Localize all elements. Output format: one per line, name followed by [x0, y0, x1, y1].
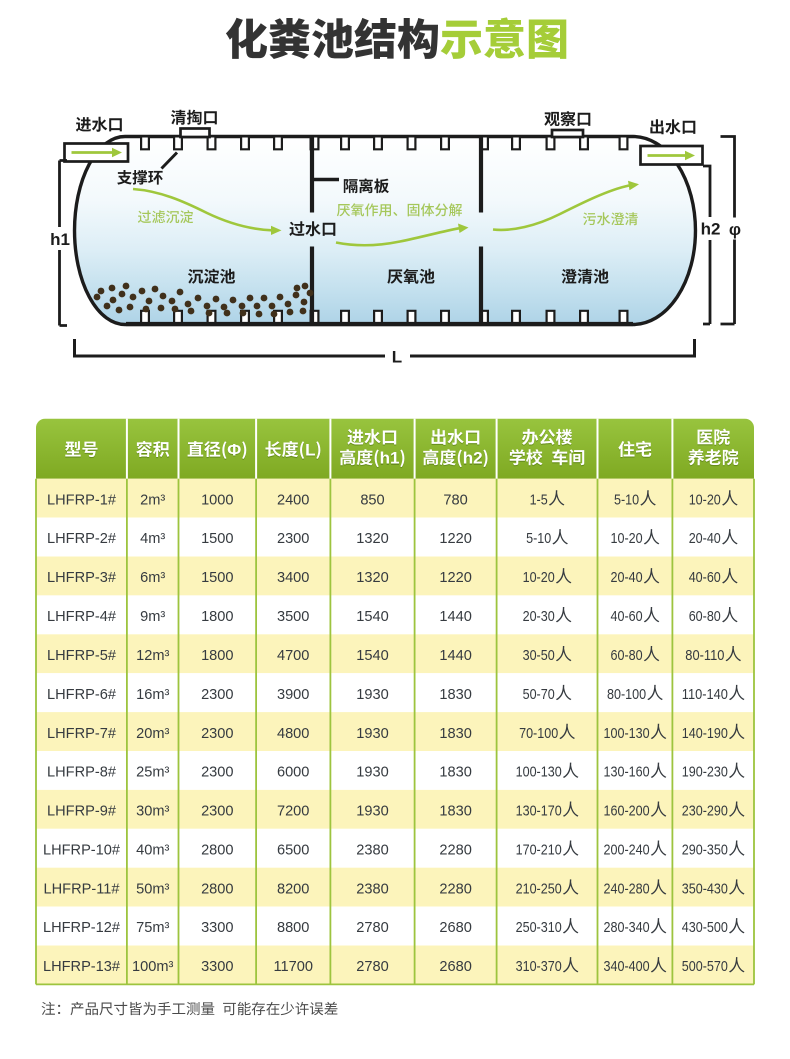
svg-text:2380: 2380 — [356, 881, 388, 897]
svg-text:40m³: 40m³ — [136, 843, 169, 859]
svg-text:240-280: 240-280 — [604, 881, 650, 897]
svg-text:LHFRP-7#: LHFRP-7# — [47, 726, 117, 742]
svg-text:2800: 2800 — [201, 843, 233, 859]
svg-text:8800: 8800 — [277, 920, 309, 936]
svg-text:50m³: 50m³ — [136, 881, 169, 897]
svg-text:30m³: 30m³ — [136, 804, 169, 820]
svg-text:4700: 4700 — [277, 648, 309, 664]
svg-text:340-400: 340-400 — [604, 959, 650, 975]
svg-text:4800: 4800 — [277, 726, 309, 742]
svg-text:1500: 1500 — [201, 531, 233, 547]
svg-text:10-20: 10-20 — [523, 570, 555, 586]
svg-text:200-240: 200-240 — [604, 843, 650, 859]
svg-text:11700: 11700 — [273, 959, 313, 975]
svg-text:10-20: 10-20 — [611, 531, 643, 547]
svg-text:40-60: 40-60 — [611, 609, 643, 625]
svg-text:L: L — [305, 441, 315, 460]
svg-text:50-70: 50-70 — [523, 687, 555, 703]
svg-text:LHFRP-6#: LHFRP-6# — [47, 687, 117, 703]
svg-text:2m³: 2m³ — [140, 492, 165, 508]
svg-text:75m³: 75m³ — [136, 920, 169, 936]
svg-text:1800: 1800 — [201, 648, 233, 664]
svg-text:290-350: 290-350 — [682, 843, 728, 859]
svg-text:30-50: 30-50 — [523, 648, 555, 664]
svg-text:6m³: 6m³ — [140, 570, 165, 586]
svg-text:1000: 1000 — [201, 492, 233, 508]
svg-text:80-100: 80-100 — [607, 687, 646, 703]
svg-text:1930: 1930 — [356, 765, 388, 781]
svg-text:6500: 6500 — [277, 843, 309, 859]
svg-text:1800: 1800 — [201, 609, 233, 625]
svg-text:160-200: 160-200 — [604, 804, 650, 820]
svg-text:2680: 2680 — [439, 959, 471, 975]
svg-text:LHFRP-9#: LHFRP-9# — [47, 804, 117, 820]
svg-text:LHFRP-1#: LHFRP-1# — [47, 492, 117, 508]
svg-text:850: 850 — [360, 492, 384, 508]
svg-text:9m³: 9m³ — [140, 609, 165, 625]
svg-text:70-100: 70-100 — [519, 726, 558, 742]
svg-text:60-80: 60-80 — [689, 609, 721, 625]
svg-text:LHFRP-12#: LHFRP-12# — [43, 920, 121, 936]
svg-text:1-5: 1-5 — [530, 492, 548, 508]
svg-text:h1: h1 — [50, 230, 70, 249]
svg-text:12m³: 12m³ — [136, 648, 169, 664]
svg-text:100m³: 100m³ — [132, 959, 174, 975]
svg-text:1830: 1830 — [439, 804, 471, 820]
svg-text:110-140: 110-140 — [682, 687, 728, 703]
svg-text:3400: 3400 — [277, 570, 309, 586]
svg-text:140-190: 140-190 — [682, 726, 728, 742]
svg-text:20m³: 20m³ — [136, 726, 169, 742]
svg-text:100-130: 100-130 — [516, 765, 562, 781]
svg-text:130-160: 130-160 — [604, 765, 650, 781]
svg-text:2280: 2280 — [439, 843, 471, 859]
svg-text:500-570: 500-570 — [682, 959, 728, 975]
svg-text:40-60: 40-60 — [689, 570, 721, 586]
svg-text:210-250: 210-250 — [516, 881, 562, 897]
svg-text:4m³: 4m³ — [140, 531, 165, 547]
svg-text:2780: 2780 — [356, 920, 388, 936]
svg-text:1830: 1830 — [439, 765, 471, 781]
svg-text:280-340: 280-340 — [604, 920, 650, 936]
svg-text:3300: 3300 — [201, 959, 233, 975]
svg-text:h1: h1 — [380, 449, 400, 468]
svg-text:LHFRP-8#: LHFRP-8# — [47, 765, 117, 781]
svg-text:130-170: 130-170 — [516, 804, 562, 820]
svg-text:20-40: 20-40 — [611, 570, 643, 586]
svg-text:1320: 1320 — [356, 531, 388, 547]
svg-text:LHFRP-4#: LHFRP-4# — [47, 609, 117, 625]
svg-text:1220: 1220 — [439, 531, 471, 547]
svg-text:25m³: 25m³ — [136, 765, 169, 781]
svg-text:LHFRP-5#: LHFRP-5# — [47, 648, 117, 664]
svg-text:LHFRP-3#: LHFRP-3# — [47, 570, 117, 586]
svg-text:430-500: 430-500 — [682, 920, 728, 936]
svg-text:350-430: 350-430 — [682, 881, 728, 897]
svg-text:10-20: 10-20 — [689, 492, 721, 508]
svg-text:h2: h2 — [701, 220, 721, 239]
svg-text:1830: 1830 — [439, 687, 471, 703]
svg-text:5-10: 5-10 — [614, 492, 639, 508]
svg-text:LHFRP-10#: LHFRP-10# — [43, 843, 121, 859]
svg-text:100-130: 100-130 — [604, 726, 650, 742]
svg-text:2300: 2300 — [201, 687, 233, 703]
svg-text:2780: 2780 — [356, 959, 388, 975]
svg-text:1540: 1540 — [356, 609, 388, 625]
svg-text:230-290: 230-290 — [682, 804, 728, 820]
svg-text:780: 780 — [443, 492, 467, 508]
svg-text:8200: 8200 — [277, 881, 309, 897]
svg-text:250-310: 250-310 — [516, 920, 562, 936]
svg-text:1830: 1830 — [439, 726, 471, 742]
svg-text:190-230: 190-230 — [682, 765, 728, 781]
svg-text:LHFRP-2#: LHFRP-2# — [47, 531, 117, 547]
svg-text:2280: 2280 — [439, 881, 471, 897]
svg-text:170-210: 170-210 — [516, 843, 562, 859]
svg-text:6000: 6000 — [277, 765, 309, 781]
svg-text:3500: 3500 — [277, 609, 309, 625]
svg-text:2300: 2300 — [201, 804, 233, 820]
svg-text:310-370: 310-370 — [516, 959, 562, 975]
svg-text:2680: 2680 — [439, 920, 471, 936]
svg-text:2300: 2300 — [201, 726, 233, 742]
svg-text:3300: 3300 — [201, 920, 233, 936]
svg-text:1440: 1440 — [439, 648, 471, 664]
svg-text:7200: 7200 — [277, 804, 309, 820]
svg-text:60-80: 60-80 — [611, 648, 643, 664]
svg-text:20-40: 20-40 — [689, 531, 721, 547]
svg-text:φ: φ — [729, 220, 741, 239]
svg-text:2300: 2300 — [277, 531, 309, 547]
svg-text:1540: 1540 — [356, 648, 388, 664]
svg-text:Φ: Φ — [227, 441, 241, 460]
svg-text:1930: 1930 — [356, 726, 388, 742]
svg-text:20-30: 20-30 — [523, 609, 555, 625]
svg-text:1320: 1320 — [356, 570, 388, 586]
svg-text:16m³: 16m³ — [136, 687, 169, 703]
svg-text:5-10: 5-10 — [526, 531, 551, 547]
svg-text:1500: 1500 — [201, 570, 233, 586]
svg-text:LHFRP-11#: LHFRP-11# — [44, 881, 121, 897]
svg-text:3900: 3900 — [277, 687, 309, 703]
svg-text:80-110: 80-110 — [685, 648, 724, 664]
svg-text:1440: 1440 — [439, 609, 471, 625]
svg-text:L: L — [392, 347, 402, 366]
svg-text:2800: 2800 — [201, 881, 233, 897]
svg-text:2380: 2380 — [356, 843, 388, 859]
svg-text:2300: 2300 — [201, 765, 233, 781]
svg-text:1930: 1930 — [356, 804, 388, 820]
svg-text:h2: h2 — [463, 449, 483, 468]
svg-text:LHFRP-13#: LHFRP-13# — [43, 959, 121, 975]
svg-text:2400: 2400 — [277, 492, 309, 508]
svg-text:1220: 1220 — [439, 570, 471, 586]
svg-text:1930: 1930 — [356, 687, 388, 703]
